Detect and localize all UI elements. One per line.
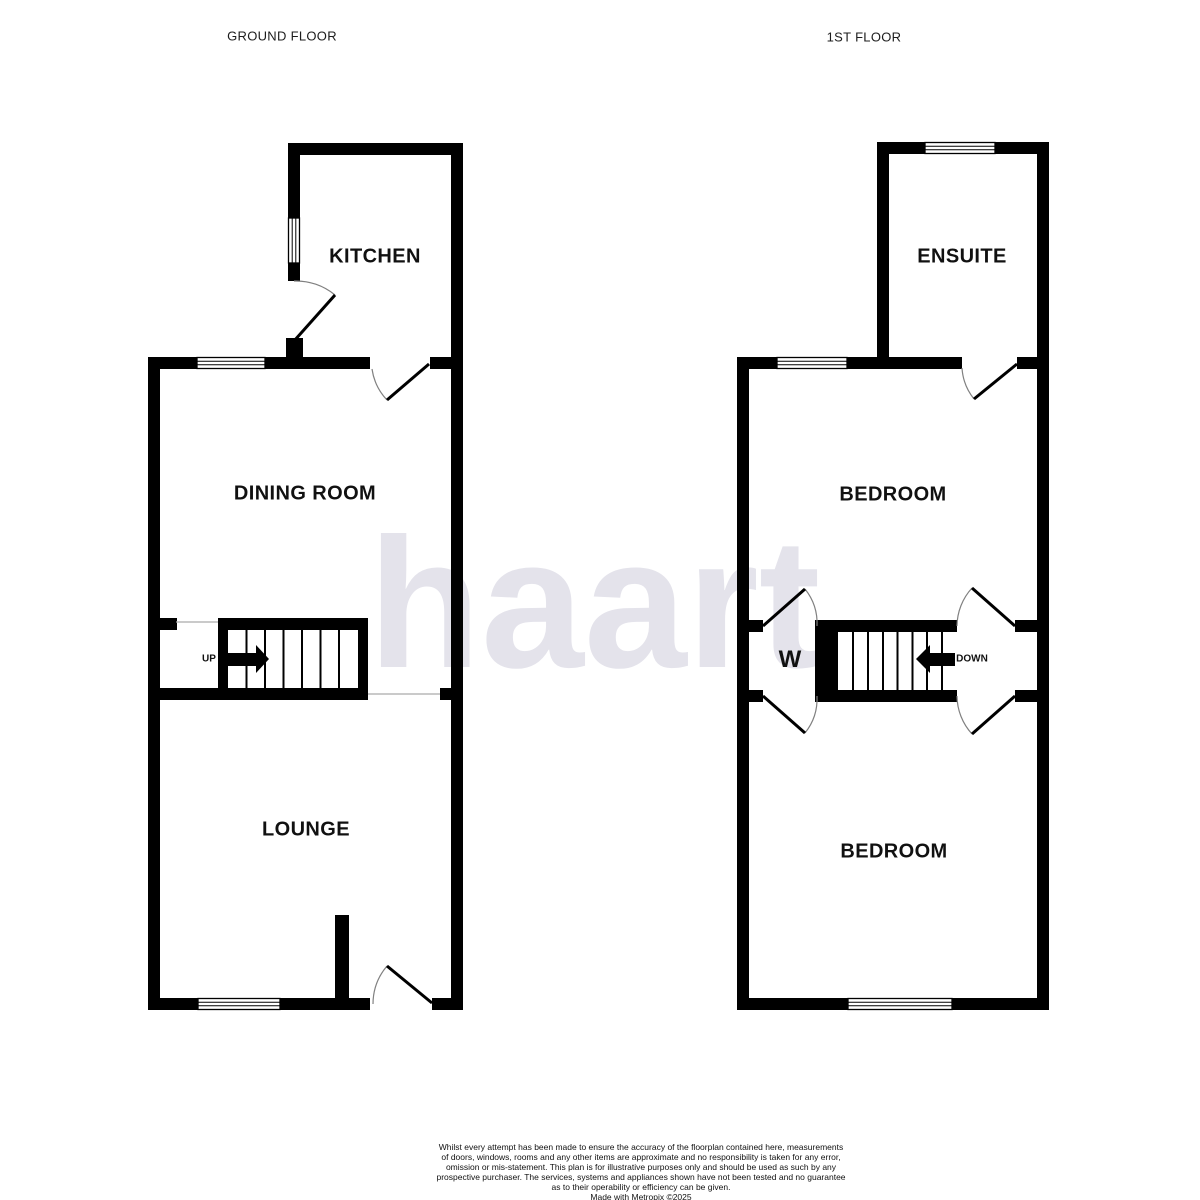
floorplan-linework	[0, 0, 1200, 1200]
room-label-dining-room: DINING ROOM	[234, 483, 376, 506]
first-floor-plan	[737, 142, 1049, 1010]
disclaimer-line: omission or mis-statement. This plan is …	[436, 1162, 845, 1172]
window-icon	[925, 143, 995, 154]
room-label-bedroom-front: BEDROOM	[839, 484, 946, 507]
window-icon	[289, 218, 300, 263]
window-icon	[848, 999, 952, 1010]
ground-floor-title: GROUND FLOOR	[227, 29, 337, 44]
disclaimer-line: as to their operability or efficiency ca…	[436, 1182, 845, 1192]
door-swing-icon	[373, 966, 432, 1004]
door-swing-icon	[763, 589, 817, 626]
room-label-ensuite: ENSUITE	[917, 246, 1006, 269]
window-icon	[197, 358, 265, 369]
disclaimer-line: of doors, windows, rooms and any other i…	[436, 1152, 845, 1162]
door-swing-icon	[957, 588, 1015, 626]
stairs-down-label: DOWN	[956, 654, 988, 665]
wardrobe-label: W	[779, 646, 802, 674]
door-swing-icon	[957, 696, 1015, 734]
metropix-credit: Made with Metropix ©2025	[436, 1192, 845, 1200]
footer-disclaimer: Whilst every attempt has been made to en…	[436, 1142, 845, 1200]
room-label-kitchen: KITCHEN	[329, 246, 421, 269]
floorplan-canvas: haart	[0, 0, 1200, 1200]
window-icon	[198, 999, 280, 1010]
first-floor-title: 1ST FLOOR	[827, 30, 902, 45]
first-floor-walls	[737, 142, 1049, 1010]
down-arrow-icon	[916, 645, 955, 673]
door-swing-icon	[763, 696, 817, 733]
room-label-lounge: LOUNGE	[262, 819, 350, 842]
ground-floor-walls	[148, 143, 463, 1010]
door-swing-icon	[294, 281, 335, 341]
room-label-bedroom-back: BEDROOM	[840, 841, 947, 864]
ground-floor-plan	[148, 143, 463, 1010]
disclaimer-line: Whilst every attempt has been made to en…	[436, 1142, 845, 1152]
door-swing-icon	[372, 364, 429, 400]
stairs-up-label: UP	[202, 654, 216, 665]
door-swing-icon	[962, 364, 1017, 399]
up-arrow-icon	[228, 645, 269, 673]
disclaimer-line: prospective purchaser. The services, sys…	[436, 1172, 845, 1182]
window-icon	[777, 358, 847, 369]
